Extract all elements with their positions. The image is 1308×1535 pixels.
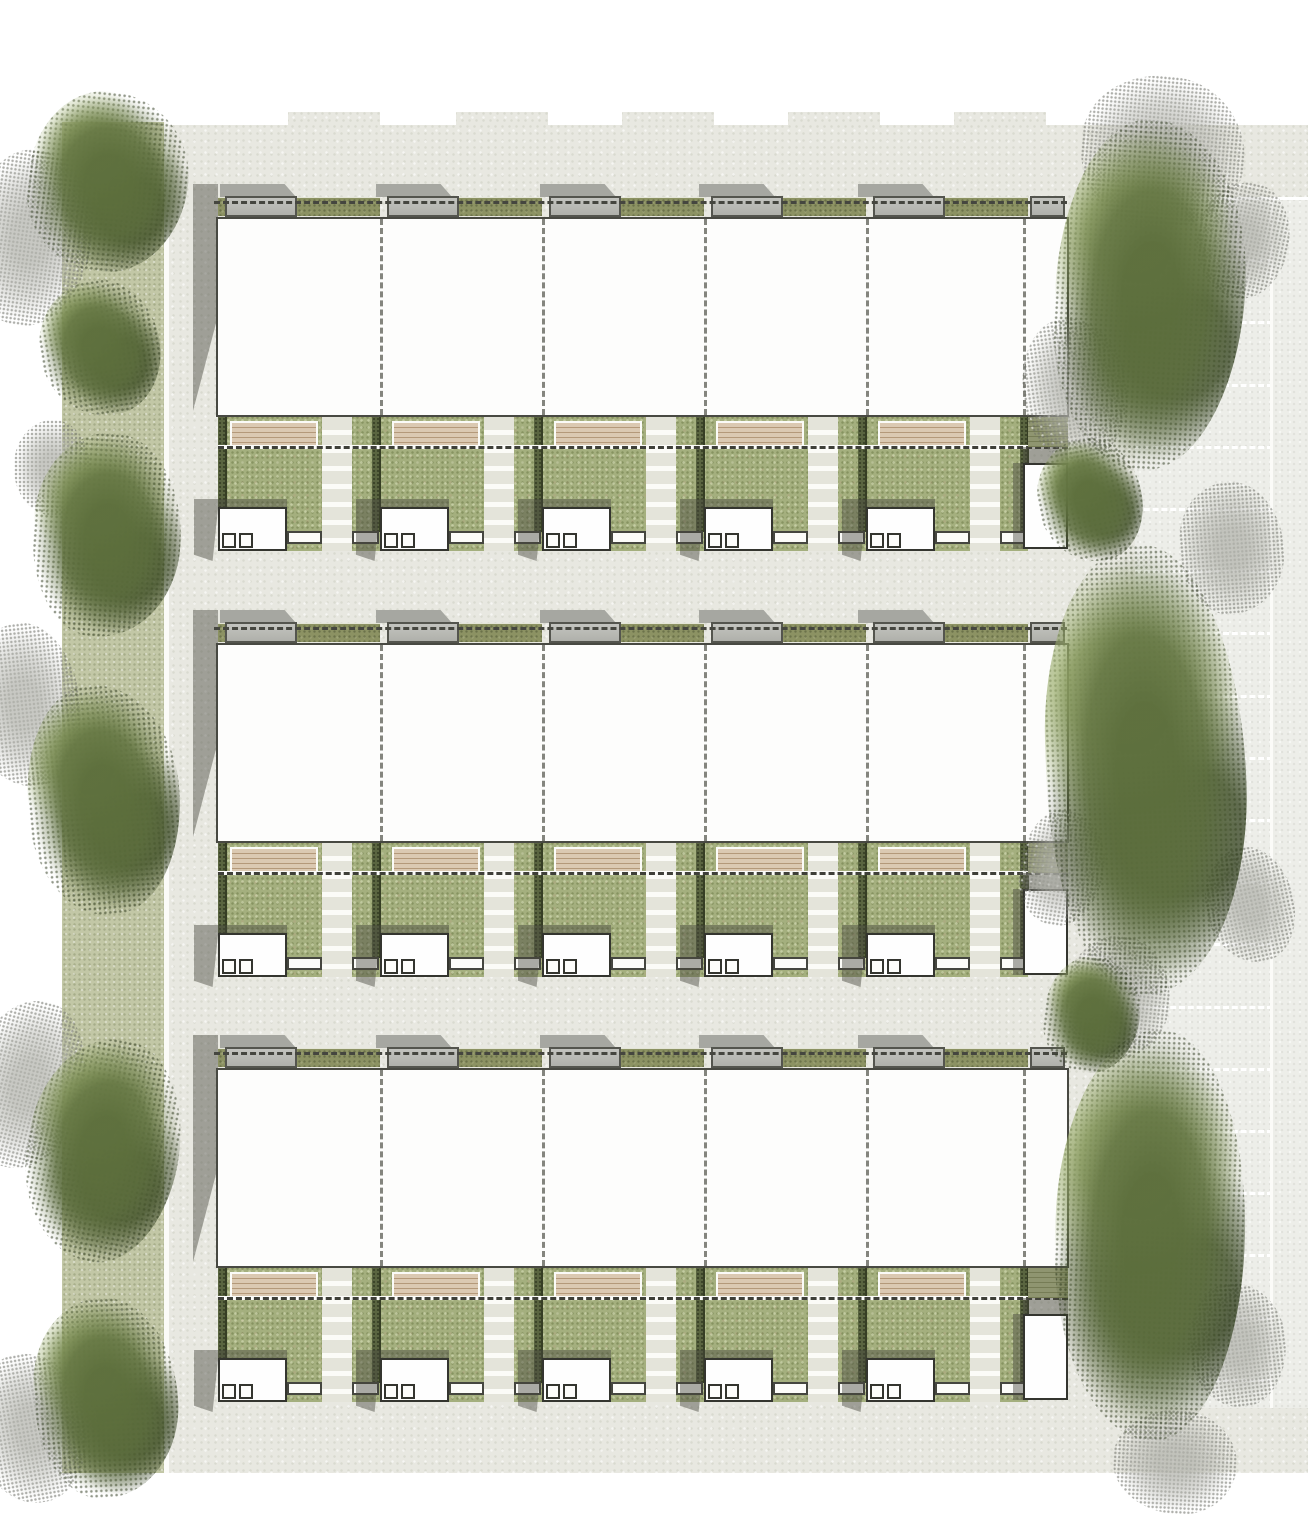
plot-boundary-dashed: [866, 1070, 869, 1266]
endbay-side-shadow: [1013, 1314, 1023, 1400]
block-shadow: [193, 1035, 218, 1262]
rooflight-panel: [1030, 1047, 1065, 1068]
plot-boundary-dashed: [704, 1070, 707, 1266]
stepping-path: [322, 1268, 352, 1402]
roof-plane: [216, 1068, 1069, 1268]
shed-skylight: [239, 1384, 253, 1399]
timber-deck: [230, 1272, 318, 1299]
shed-skylight: [563, 1384, 577, 1399]
rooflight-panel: [225, 1047, 297, 1068]
stepping-path: [646, 1268, 676, 1402]
rooflight-panel: [549, 1047, 621, 1068]
plot-boundary-dashed: [380, 1070, 383, 1266]
paved-step: [449, 1382, 484, 1395]
green-roof-strip: [459, 1048, 542, 1067]
endbay-yard: [1023, 1314, 1068, 1400]
shed-skylight: [384, 1384, 398, 1399]
green-roof-sliver: [218, 1048, 225, 1067]
stepping-path: [484, 1268, 514, 1402]
paved-step: [935, 1382, 970, 1395]
plot-boundary-dashed: [1023, 1070, 1026, 1266]
endbay-shadow-band: [1023, 1298, 1068, 1314]
ridge-dashed-line: [214, 1052, 1067, 1055]
green-roof-strip: [621, 1048, 704, 1067]
timber-deck: [392, 1272, 480, 1299]
plot-boundary-dashed: [542, 1070, 545, 1266]
green-roof-strip: [945, 1048, 1028, 1067]
stepping-path: [808, 1268, 838, 1402]
shed-skylight: [401, 1384, 415, 1399]
site-plan: [0, 0, 1308, 1535]
paved-step: [773, 1382, 808, 1395]
shed-skylight: [887, 1384, 901, 1399]
stepping-path: [970, 1268, 1000, 1402]
shed-skylight: [725, 1384, 739, 1399]
endbay-shaded-deck: [1028, 1268, 1068, 1298]
paved-step: [611, 1382, 646, 1395]
timber-deck: [554, 1272, 642, 1299]
green-roof-strip: [297, 1048, 380, 1067]
paved-step: [287, 1382, 322, 1395]
rooflight-panel: [387, 1047, 459, 1068]
terrace-block-3: [0, 0, 1308, 1535]
shed-skylight: [870, 1384, 884, 1399]
shed-skylight: [546, 1384, 560, 1399]
shed-skylight: [708, 1384, 722, 1399]
green-roof-strip: [783, 1048, 866, 1067]
rooflight-panel: [711, 1047, 783, 1068]
shed-skylight: [222, 1384, 236, 1399]
timber-deck: [716, 1272, 804, 1299]
timber-deck: [878, 1272, 966, 1299]
garden-dashed-line: [218, 1297, 1068, 1300]
rooflight-panel: [873, 1047, 945, 1068]
